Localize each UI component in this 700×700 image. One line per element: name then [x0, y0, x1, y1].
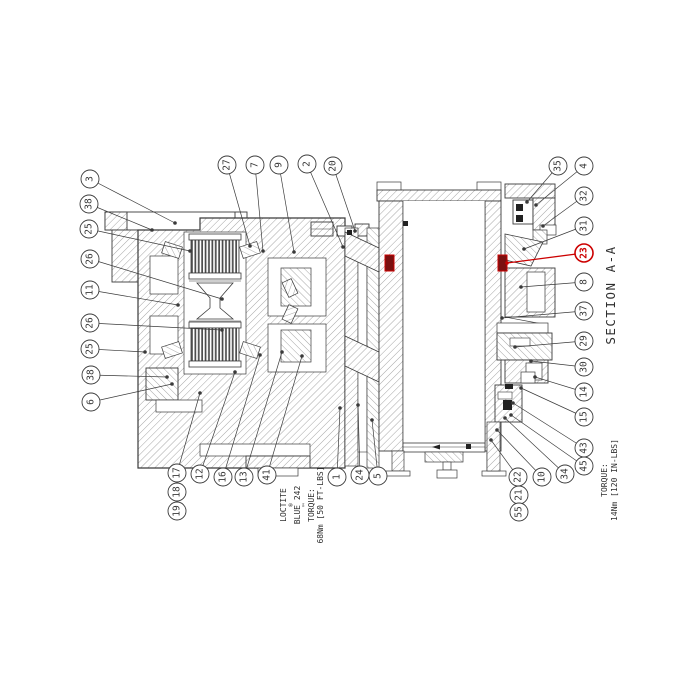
svg-text:21: 21 — [514, 489, 525, 501]
svg-text:27: 27 — [222, 159, 233, 170]
svg-text:9: 9 — [274, 162, 285, 168]
drum — [377, 182, 506, 478]
svg-text:17: 17 — [172, 467, 183, 478]
svg-text:25: 25 — [84, 223, 95, 234]
svg-text:11: 11 — [85, 284, 96, 296]
svg-text:14Nm [120 IN-LBS]: 14Nm [120 IN-LBS] — [610, 439, 619, 521]
svg-text:31: 31 — [579, 220, 590, 232]
svg-text:32: 32 — [579, 190, 590, 201]
balloon-18: 18 — [168, 483, 186, 501]
svg-text:30: 30 — [579, 361, 590, 373]
balloon-19: 19 — [168, 502, 186, 520]
svg-text:12: 12 — [195, 468, 206, 479]
svg-text:45: 45 — [579, 460, 590, 471]
svg-text:1: 1 — [332, 474, 343, 480]
svg-text:BLUE 242: BLUE 242 — [293, 486, 302, 525]
svg-text:20: 20 — [328, 160, 339, 172]
svg-text:23: 23 — [579, 247, 590, 259]
svg-text:25: 25 — [85, 343, 96, 354]
loctite-note: LOCTITE ® BLUE 242 ™ TORQUE: 68Nm [50 FT… — [279, 466, 325, 543]
svg-text:22: 22 — [513, 471, 524, 482]
svg-text:LOCTITE: LOCTITE — [279, 488, 288, 522]
svg-text:TORQUE:: TORQUE: — [307, 488, 316, 522]
gearbox-and-drum-geometry — [105, 182, 556, 478]
svg-text:5: 5 — [373, 473, 384, 479]
svg-text:18: 18 — [172, 486, 183, 498]
svg-text:15: 15 — [579, 411, 590, 422]
svg-text:38: 38 — [84, 198, 95, 210]
svg-text:34: 34 — [560, 468, 571, 480]
svg-text:13: 13 — [239, 471, 250, 482]
svg-text:26: 26 — [85, 253, 96, 265]
svg-text:37: 37 — [579, 305, 590, 316]
svg-text:55: 55 — [514, 506, 525, 517]
svg-text:4: 4 — [579, 163, 590, 169]
svg-text:7: 7 — [250, 162, 261, 168]
svg-text:24: 24 — [355, 469, 366, 481]
coupling — [345, 228, 379, 468]
svg-text:16: 16 — [218, 471, 229, 483]
svg-text:68Nm [50 FT-LBS]: 68Nm [50 FT-LBS] — [316, 466, 325, 543]
balloon-25: 25 — [81, 340, 147, 358]
svg-text:38: 38 — [86, 369, 97, 381]
svg-text:35: 35 — [553, 160, 564, 171]
svg-text:TORQUE:: TORQUE: — [600, 463, 609, 497]
drawing-sheet: 3382526112625386277922035432312383729301… — [0, 0, 700, 700]
section-label: SECTION A-A — [603, 245, 618, 344]
svg-text:6: 6 — [86, 399, 97, 405]
svg-text:14: 14 — [579, 386, 590, 398]
svg-text:2: 2 — [302, 161, 313, 167]
svg-text:29: 29 — [579, 335, 590, 347]
svg-text:19: 19 — [172, 505, 183, 517]
assembly-section-view: 3382526112625386277922035432312383729301… — [0, 0, 700, 700]
svg-text:43: 43 — [579, 442, 590, 453]
svg-text:8: 8 — [579, 279, 590, 285]
svg-text:10: 10 — [537, 471, 548, 483]
balloon-14: 14 — [533, 375, 593, 401]
svg-text:26: 26 — [85, 317, 96, 329]
svg-text:3: 3 — [85, 176, 96, 182]
balloon-55: 55 — [510, 503, 528, 521]
balloon-21: 21 — [510, 486, 528, 504]
svg-text:41: 41 — [262, 469, 273, 481]
torque-note: TORQUE: 14Nm [120 IN-LBS] — [600, 439, 619, 521]
